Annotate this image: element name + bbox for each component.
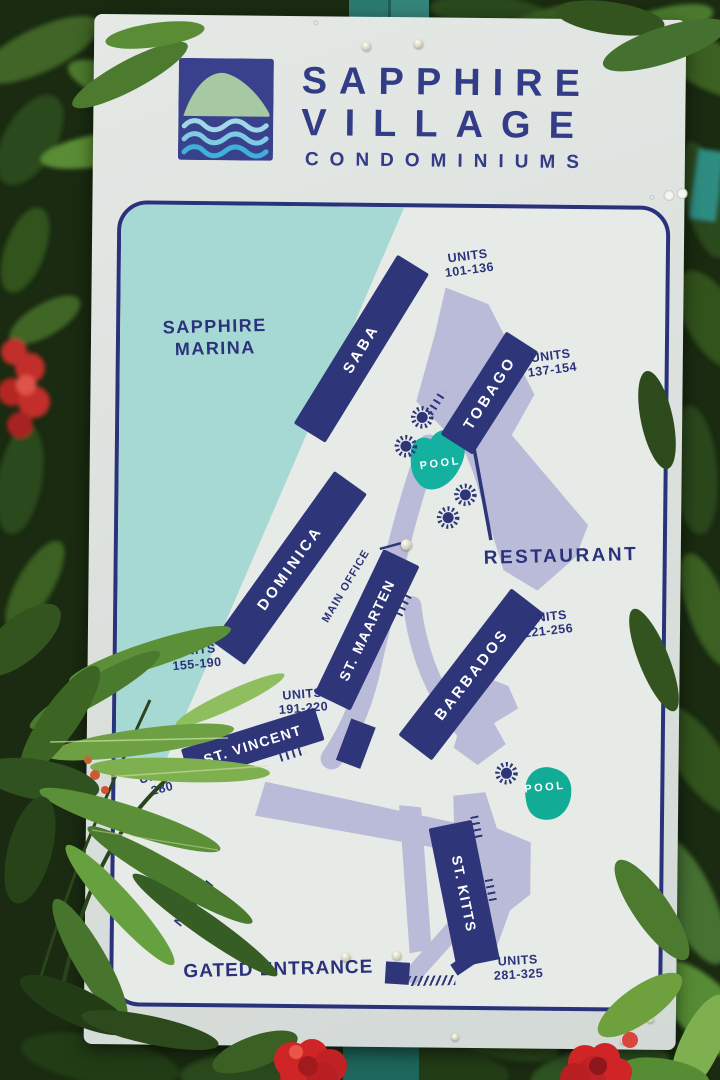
hibiscus-flower-center <box>207 1022 347 1080</box>
hibiscus-flower-right <box>560 962 720 1080</box>
photo-of-site-map-sign: SAPPHIRE VILLAGE CONDOMINIUMS <box>0 0 720 1080</box>
foreground-foliage <box>0 0 720 1080</box>
oleander-leaves <box>0 591 288 1029</box>
